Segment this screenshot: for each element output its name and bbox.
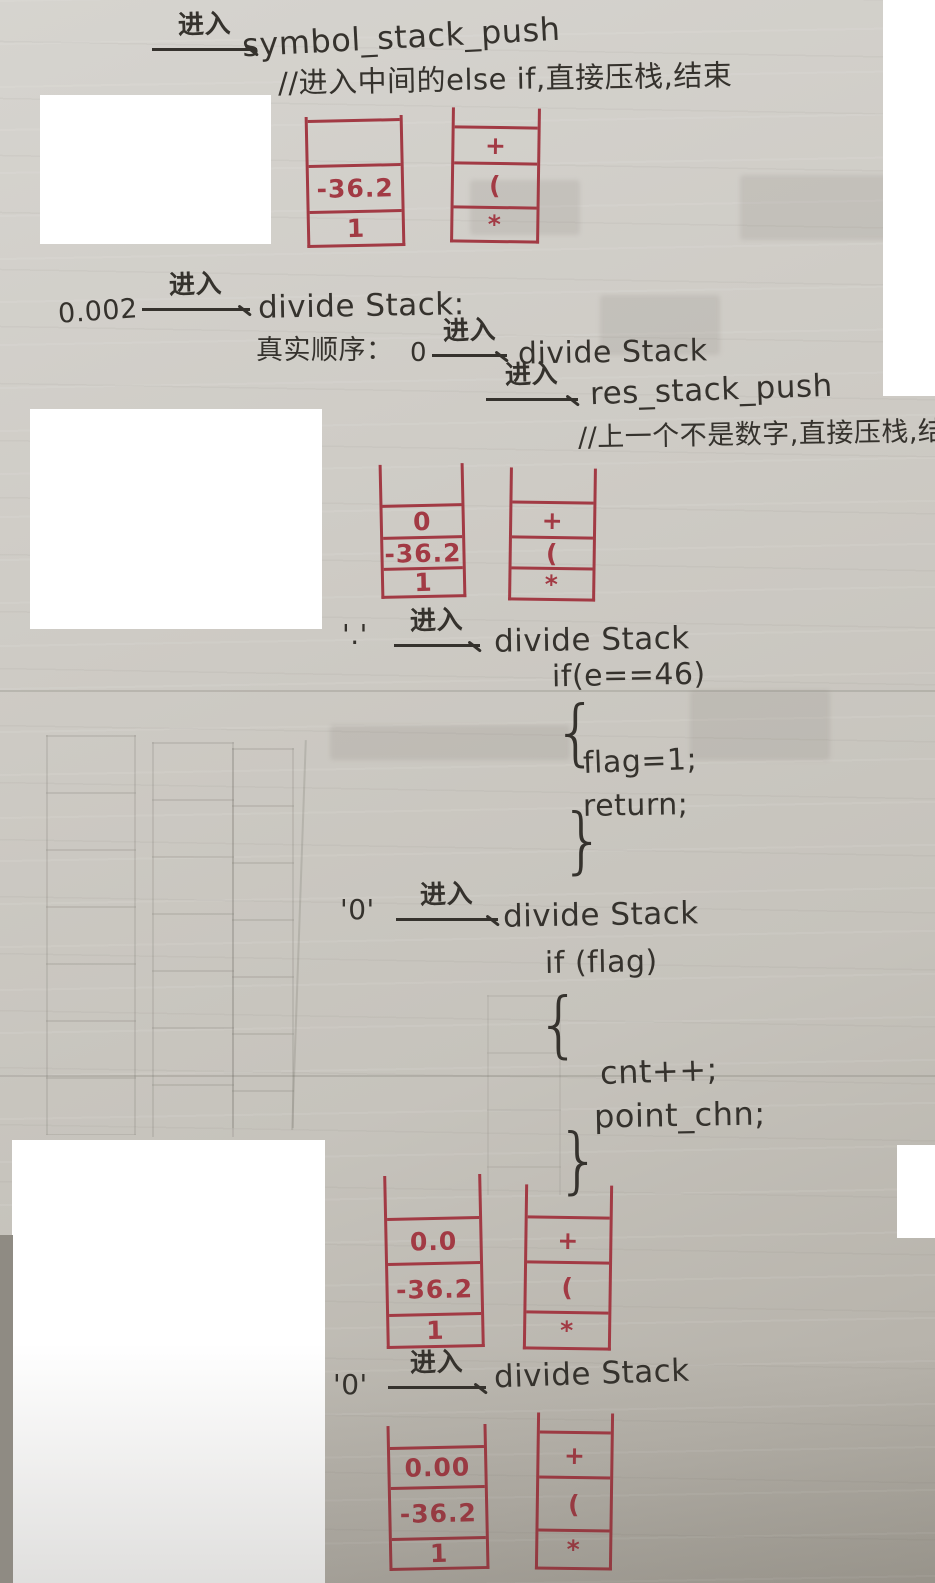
stack-cell: ( (512, 535, 593, 567)
stack-cell: + (454, 125, 537, 162)
stack-cell: 0 (382, 503, 462, 537)
stack-cell: -36.2 (383, 535, 463, 568)
comment-line: //上一个不是数字,直接压栈,结束 (578, 409, 935, 455)
code-condition: if(e==46) (552, 657, 706, 695)
enter-arrow: 进入 (396, 882, 498, 921)
code-line: flag=1; (582, 742, 697, 781)
stack-cell: * (453, 205, 536, 240)
stack-cell: 1 (310, 209, 403, 245)
arrow-label: 进入 (505, 361, 559, 389)
input-token: 0 (410, 338, 427, 368)
paper-crease (0, 690, 935, 692)
erased-stack-sketch (232, 748, 294, 1128)
symbol-stack-3: + ( * (523, 1184, 613, 1350)
target-function-label: divide Stack (503, 895, 699, 934)
photo-background-edge (897, 1145, 935, 1238)
photo-shadow (0, 1343, 935, 1583)
redaction-box (30, 409, 322, 629)
paper-crease (0, 1075, 935, 1077)
stack-cell (308, 118, 401, 165)
close-brace: } (560, 808, 606, 873)
erased-writing (690, 690, 830, 760)
symbol-stack-2: + ( * (508, 467, 597, 601)
erased-stack-sketch (46, 735, 136, 1135)
target-function-label: divide Stack (494, 620, 690, 659)
arrow-line (396, 908, 498, 921)
handwritten-notes-photo: 进入 symbol_stack_push //进入中间的else if,直接压栈… (0, 0, 935, 1583)
arrow-line (432, 344, 507, 357)
number-stack-2: 0 -36.2 1 (379, 463, 467, 599)
redaction-box (40, 95, 271, 244)
stack-cell: ( (526, 1260, 609, 1311)
paper-crease (291, 740, 307, 1130)
arrow-line (142, 298, 250, 311)
input-token: '.' (342, 618, 368, 651)
stack-cell: ( (454, 161, 538, 206)
arrow-line (394, 634, 480, 647)
erased-writing (740, 175, 890, 240)
code-condition: if (flag) (545, 944, 658, 981)
erased-stack-sketch (152, 742, 234, 1137)
open-brace: { (536, 992, 582, 1057)
arrow-line (486, 388, 578, 401)
enter-arrow: 进入 (142, 272, 250, 311)
comment-line: //进入中间的else if,直接压栈,结束 (278, 52, 733, 102)
code-line: point_chn; (594, 1095, 766, 1136)
enter-arrow: 进入 (432, 318, 507, 357)
stack-cell: + (512, 500, 593, 536)
symbol-stack-1: + ( * (450, 107, 541, 243)
erased-writing (330, 725, 570, 760)
stack-cell: 1 (389, 1312, 482, 1346)
arrow-label: 进入 (169, 271, 223, 299)
target-function-label: res_stack_push (589, 368, 833, 412)
arrow-label: 进入 (420, 881, 474, 909)
stack-cell: -36.2 (388, 1261, 481, 1314)
arrow-label: 进入 (410, 607, 464, 635)
code-line: cnt++; (599, 1050, 718, 1092)
photo-background-edge (883, 0, 935, 396)
stack-cell: 0.0 (387, 1216, 480, 1263)
input-token: '0' (340, 893, 375, 926)
real-order-label: 真实顺序： (256, 328, 394, 367)
number-stack-3: 0.0 -36.2 1 (383, 1174, 485, 1349)
stack-cell: -36.2 (309, 163, 402, 211)
stack-cell: + (527, 1215, 610, 1261)
input-token: 0.002 (57, 293, 139, 329)
stack-cell: 1 (384, 566, 464, 596)
stack-cell: * (526, 1310, 608, 1347)
number-stack-1: -36.2 1 (305, 115, 406, 248)
arrow-label: 进入 (443, 317, 497, 345)
page-edge-shadow (0, 1235, 13, 1583)
arrow-label: 进入 (178, 11, 232, 39)
enter-arrow: 进入 (486, 362, 578, 401)
stack-cell: * (511, 566, 592, 598)
enter-arrow: 进入 (394, 608, 480, 647)
close-brace: } (556, 1128, 602, 1193)
